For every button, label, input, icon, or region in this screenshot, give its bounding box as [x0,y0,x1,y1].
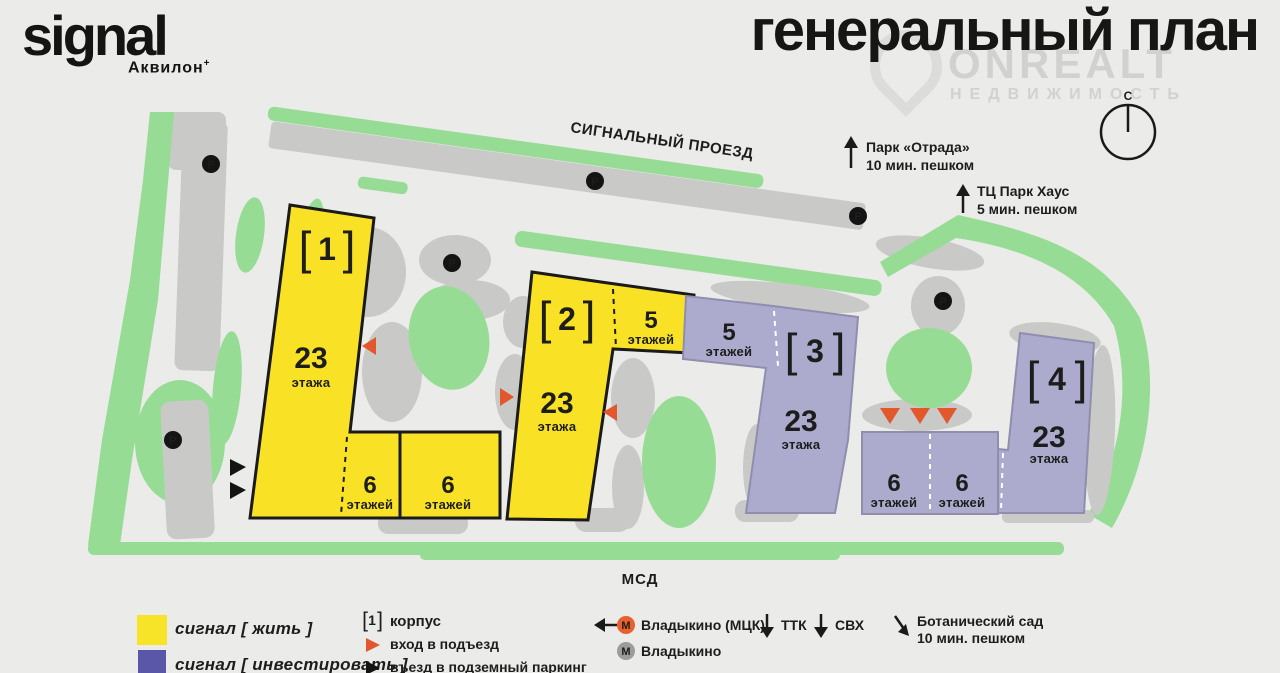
greenery [886,328,972,408]
building-4-bracket: ] [1075,352,1088,404]
building-4-floors: 23 [1032,421,1065,454]
legend-botanic-label: Ботанический сад [917,613,1043,629]
diagonal-arrow-icon [895,616,904,629]
parking-icon: P [202,155,220,173]
wing-floors: 6 [887,470,900,497]
building-4-number: 4 [1048,361,1066,397]
parking-icon: P [443,254,461,272]
building-2-floors-unit: этажа [538,419,577,434]
street-pavement [268,121,866,230]
wing-floors-unit: этажей [939,495,986,510]
watermark-subtitle: НЕДВИЖИМОСТЬ [950,86,1187,104]
poi-name: Парк «Отрада» [866,139,970,155]
poi-park-otrada: Парк «Отрада» 10 мин. пешком [844,136,974,173]
building-4-group: [ 4 ] 23 этажа [998,333,1094,513]
building-3-number: 3 [806,333,824,369]
greenery [642,396,716,528]
parking-icon: P [934,292,952,310]
building-3-bracket: ] [833,324,846,376]
metro-letter: М [621,646,630,658]
legend-svh-label: СВХ [835,617,865,633]
poi-park-house: ТЦ Парк Хаус 5 мин. пешком [956,183,1077,217]
parking-icon: P [586,172,604,190]
poi-name: ТЦ Парк Хаус [977,183,1070,199]
wing-floors-unit: этажей [871,495,918,510]
wing-floors-unit: этажей [628,332,675,347]
logo-subtitle-text: Аквилон [128,59,204,76]
legend-korpus-label: корпус [390,613,441,630]
wing-floors-unit: этажей [706,344,753,359]
genplan-page: СИГНАЛЬНЫЙ ПРОЕЗД МСД [ 1 ] 23 этажа 6 э… [0,0,1280,673]
building-2-bracket: [ [539,292,552,344]
logo-plus-mark: + [204,58,211,69]
wing-floors: 6 [363,472,376,499]
legend-invest-swatch [138,650,166,673]
legend-live-label: сигнал [ жить ] [175,619,314,638]
wing-floors: 6 [955,470,968,497]
wing-floors: 5 [722,319,735,346]
signal-logo: signal [22,8,166,64]
underground-parking-markers [230,459,246,499]
greenery [420,549,840,560]
left-arrow-icon [594,618,605,632]
parking-entry-arrow-icon [230,459,246,476]
building-3-floors: 23 [784,405,817,438]
wing-floors: 6 [441,472,454,499]
entrance-arrow-icon [366,638,380,652]
diagonal-arrow-icon [898,624,909,636]
wing-floors-unit: этажей [347,497,394,512]
logo-subtitle: Аквилон+ [128,58,210,77]
building-2-floors: 23 [540,387,573,420]
poi-time: 10 мин. пешком [866,157,974,173]
parking-area [174,120,228,371]
greenery [357,176,408,195]
parking-letter: P [939,296,946,308]
legend-parking-label: въезд в подземный паркинг [390,659,587,673]
legend-ttk-label: ТТК [781,617,807,633]
building-1-bracket: [ [299,222,312,274]
parking-letter: P [448,258,455,270]
building-2-number: 2 [558,301,576,337]
building-1-number: 1 [318,231,336,267]
legend-korpus-number: 1 [368,612,376,628]
building-1-floors: 23 [294,342,327,375]
parking-letter: P [591,176,598,188]
metro-letter: М [621,620,630,632]
building-4-bracket: [ [1027,352,1040,404]
wing-floors-unit: этажей [425,497,472,512]
building-2-bracket: ] [583,292,596,344]
parking-area [160,399,215,539]
building-1-bracket: ] [343,222,356,274]
legend-korpus-bracket: ] [377,609,383,632]
building-4-floors-unit: этажа [1030,451,1069,466]
up-arrow-icon [844,136,858,148]
greenery [231,195,269,274]
legend-live-swatch [137,615,167,645]
wing-floors: 5 [644,307,657,334]
legend-entrance-label: вход в подъезд [390,636,499,652]
parking-icon: P [849,207,867,225]
legend-botanic-time: 10 мин. пешком [917,630,1025,646]
poi-time: 5 мин. пешком [977,201,1077,217]
parking-letter: P [854,211,861,223]
building-3-floors-unit: этажа [782,437,821,452]
page-title: генеральный план [751,2,1258,60]
building-1-floors-unit: этажа [292,375,331,390]
down-arrow-icon [814,627,828,638]
building-3-bracket: [ [785,324,798,376]
parking-entry-arrow-icon [230,482,246,499]
parking-letter: P [207,159,214,171]
parking-letter: P [169,435,176,447]
highway-label: МСД [622,571,659,588]
up-arrow-icon [956,184,970,196]
parking-icon: P [164,431,182,449]
legend: сигнал [ жить ] сигнал [ инвестировать ]… [137,609,1043,673]
legend-metro-mck-label: Владыкино (МЦК) [641,617,765,633]
legend-metro-label: Владыкино [641,643,721,659]
